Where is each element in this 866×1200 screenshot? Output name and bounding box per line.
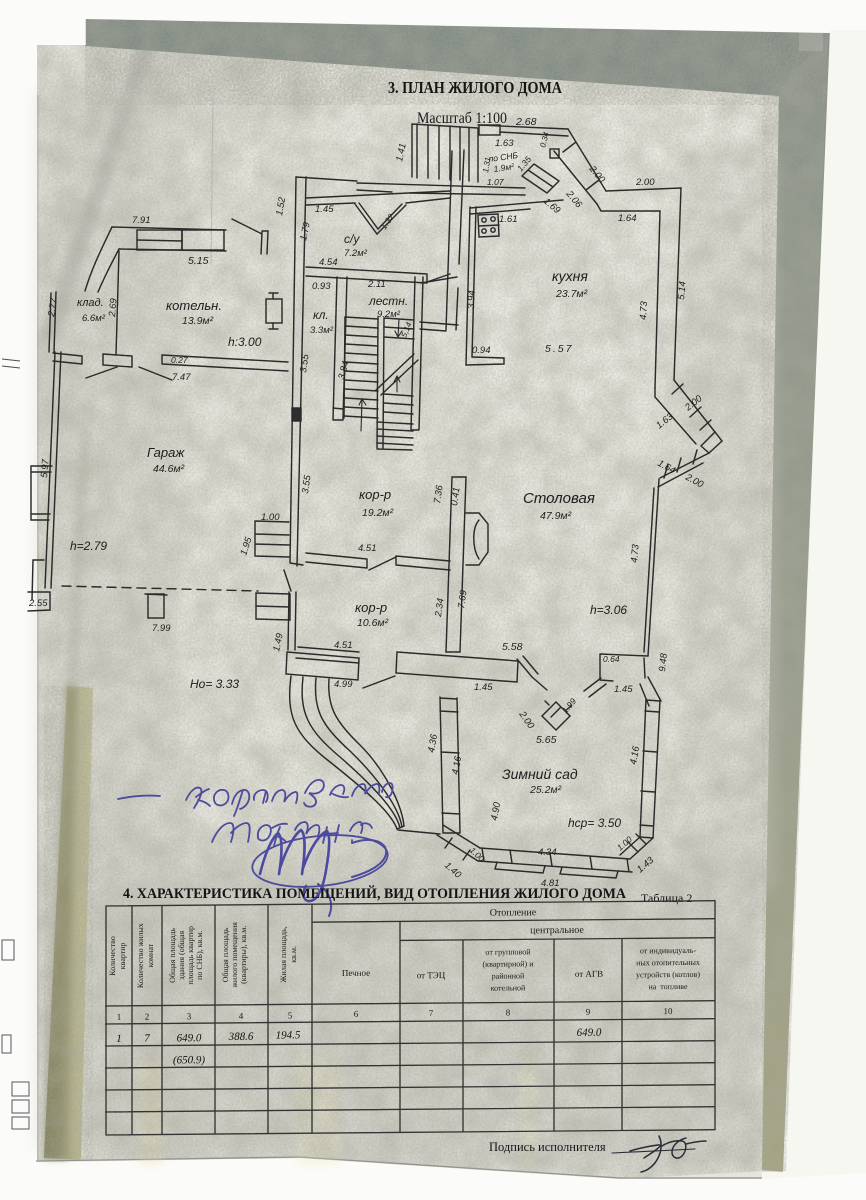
- svg-text:h:3.00: h:3.00: [228, 335, 262, 349]
- svg-text:9.2м²: 9.2м²: [377, 309, 401, 320]
- svg-text:7.2м²: 7.2м²: [344, 248, 368, 259]
- svg-text:9: 9: [586, 1007, 591, 1017]
- svg-text:1.45: 1.45: [474, 682, 493, 693]
- svg-text:5.14: 5.14: [676, 281, 689, 300]
- svg-text:194.5: 194.5: [276, 1029, 301, 1041]
- svg-text:кухня: кухня: [552, 268, 588, 284]
- svg-text:(квартирной) и: (квартирной) и: [483, 959, 535, 968]
- svg-text:0.27: 0.27: [171, 355, 188, 365]
- svg-text:Количество: Количество: [108, 936, 117, 976]
- svg-text:Общая площадь: Общая площадь: [221, 927, 230, 982]
- svg-text:районной: районной: [492, 971, 525, 980]
- svg-text:388.6: 388.6: [228, 1031, 254, 1043]
- svg-text:(650.9): (650.9): [173, 1054, 205, 1066]
- svg-text:Общая площадь: Общая площадь: [168, 928, 177, 983]
- svg-text:квартир: квартир: [118, 942, 127, 969]
- svg-text:Масштаб 1:100: Масштаб 1:100: [417, 110, 507, 127]
- svg-text:Печное: Печное: [342, 968, 370, 978]
- svg-text:площадь квартир: площадь квартир: [186, 926, 195, 985]
- svg-text:Гараж: Гараж: [147, 445, 185, 460]
- svg-text:1.61: 1.61: [499, 214, 518, 225]
- svg-text:котельн.: котельн.: [166, 298, 222, 313]
- svg-text:0.94: 0.94: [472, 345, 491, 356]
- svg-text:3: 3: [187, 1011, 192, 1021]
- svg-text:649.0: 649.0: [177, 1032, 202, 1044]
- svg-text:Жилая площадь,: Жилая площадь,: [279, 926, 288, 982]
- svg-text:4.54: 4.54: [319, 257, 338, 268]
- svg-text:h=3.06: h=3.06: [590, 603, 627, 617]
- svg-text:1.45: 1.45: [315, 204, 334, 215]
- svg-text:Таблица 2: Таблица 2: [641, 891, 692, 905]
- svg-text:2.55: 2.55: [28, 598, 48, 609]
- svg-text:от АГВ: от АГВ: [575, 969, 603, 979]
- svg-text:1.07: 1.07: [487, 177, 504, 187]
- svg-text:5.65: 5.65: [536, 734, 557, 746]
- svg-text:4.99: 4.99: [334, 679, 353, 690]
- svg-text:3. ПЛАН ЖИЛОГО ДОМА: 3. ПЛАН ЖИЛОГО ДОМА: [388, 78, 563, 97]
- svg-text:5.57: 5.57: [545, 343, 573, 355]
- svg-text:по СНБ), кв.м.: по СНБ), кв.м.: [195, 930, 204, 979]
- svg-text:9.48: 9.48: [657, 652, 670, 672]
- svg-text:hср= 3.50: hср= 3.50: [568, 816, 621, 830]
- svg-text:центральное: центральное: [530, 925, 584, 936]
- svg-text:Зимний сад: Зимний сад: [502, 766, 578, 782]
- svg-text:Подпись исполнителя: Подпись исполнителя: [489, 1140, 606, 1154]
- svg-text:Но= 3.33: Но= 3.33: [190, 677, 239, 691]
- svg-text:лестн.: лестн.: [368, 294, 408, 308]
- svg-text:ных отопительных: ных отопительных: [636, 958, 700, 968]
- svg-text:6.6м²: 6.6м²: [82, 313, 106, 324]
- svg-text:0.93: 0.93: [312, 281, 331, 292]
- svg-text:здания (общая: здания (общая: [177, 930, 186, 979]
- svg-text:19.2м²: 19.2м²: [362, 507, 394, 519]
- svg-text:котельной: котельной: [491, 983, 526, 992]
- svg-text:от индивидуаль-: от индивидуаль-: [640, 946, 697, 955]
- svg-text:комнат: комнат: [146, 943, 155, 967]
- svg-text:7.99: 7.99: [152, 623, 171, 634]
- svg-text:на топливе: на топливе: [648, 982, 688, 991]
- svg-text:4: 4: [239, 1011, 244, 1021]
- svg-text:649.0: 649.0: [577, 1027, 602, 1039]
- svg-text:жилого помещения: жилого помещения: [230, 922, 239, 989]
- svg-text:кор-р: кор-р: [359, 487, 391, 502]
- svg-text:4.34: 4.34: [538, 847, 557, 858]
- svg-text:6: 6: [354, 1009, 359, 1019]
- svg-text:10: 10: [664, 1006, 673, 1016]
- svg-text:кор-р: кор-р: [355, 600, 387, 615]
- svg-text:3.3м²: 3.3м²: [310, 325, 334, 336]
- svg-text:1.64: 1.64: [618, 213, 637, 224]
- svg-text:10.6м²: 10.6м²: [357, 617, 389, 629]
- svg-text:4.51: 4.51: [358, 543, 377, 554]
- svg-text:1: 1: [117, 1012, 121, 1022]
- svg-text:7: 7: [144, 1033, 150, 1045]
- svg-text:7.91: 7.91: [132, 215, 151, 226]
- svg-text:1.45: 1.45: [614, 684, 633, 695]
- svg-text:2: 2: [145, 1012, 149, 1022]
- svg-text:от групповой: от групповой: [485, 947, 531, 956]
- svg-text:1.00: 1.00: [261, 512, 280, 523]
- svg-text:4. ХАРАКТЕРИСТИКА ПОМЕЩЕНИЙ, В: 4. ХАРАКТЕРИСТИКА ПОМЕЩЕНИЙ, ВИД ОТОПЛЕН…: [123, 885, 626, 902]
- svg-text:от ТЭЦ: от ТЭЦ: [417, 970, 446, 980]
- svg-text:3.94: 3.94: [466, 290, 478, 309]
- svg-text:(квартиры), кв.м.: (квартиры), кв.м.: [239, 926, 248, 984]
- svg-text:2.11: 2.11: [367, 279, 386, 290]
- svg-text:5.97: 5.97: [39, 458, 52, 478]
- svg-text:с/у: с/у: [344, 232, 360, 246]
- svg-text:23.7м²: 23.7м²: [555, 288, 588, 300]
- svg-text:7: 7: [429, 1008, 434, 1018]
- svg-text:кв.м.: кв.м.: [289, 946, 298, 963]
- svg-text:8: 8: [506, 1007, 511, 1017]
- svg-text:4.73: 4.73: [638, 300, 650, 320]
- svg-text:47.9м²: 47.9м²: [540, 510, 572, 522]
- svg-text:кл.: кл.: [313, 308, 329, 322]
- svg-text:1: 1: [116, 1033, 121, 1045]
- svg-text:4.51: 4.51: [334, 640, 353, 651]
- svg-text:4.73: 4.73: [629, 543, 642, 563]
- svg-text:Количество жилых: Количество жилых: [136, 923, 145, 988]
- svg-text:2.69: 2.69: [107, 297, 120, 318]
- svg-text:устройств (котлов): устройств (котлов): [636, 970, 700, 980]
- svg-text:1.63: 1.63: [495, 138, 514, 149]
- svg-text:13.9м²: 13.9м²: [182, 315, 214, 327]
- svg-text:25.2м²: 25.2м²: [529, 784, 562, 796]
- svg-text:h=2.79: h=2.79: [70, 539, 107, 553]
- svg-text:0.64: 0.64: [603, 654, 620, 664]
- svg-text:Столовая: Столовая: [523, 490, 595, 507]
- svg-text:5.58: 5.58: [502, 641, 523, 653]
- svg-text:5: 5: [288, 1010, 293, 1020]
- svg-text:клад.: клад.: [77, 297, 104, 309]
- svg-text:2.00: 2.00: [635, 177, 655, 188]
- svg-text:Отопление: Отопление: [490, 907, 537, 918]
- svg-text:5.15: 5.15: [188, 255, 209, 267]
- svg-text:7.47: 7.47: [172, 372, 191, 383]
- svg-text:2.68: 2.68: [515, 116, 537, 128]
- svg-text:44.6м²: 44.6м²: [153, 463, 185, 475]
